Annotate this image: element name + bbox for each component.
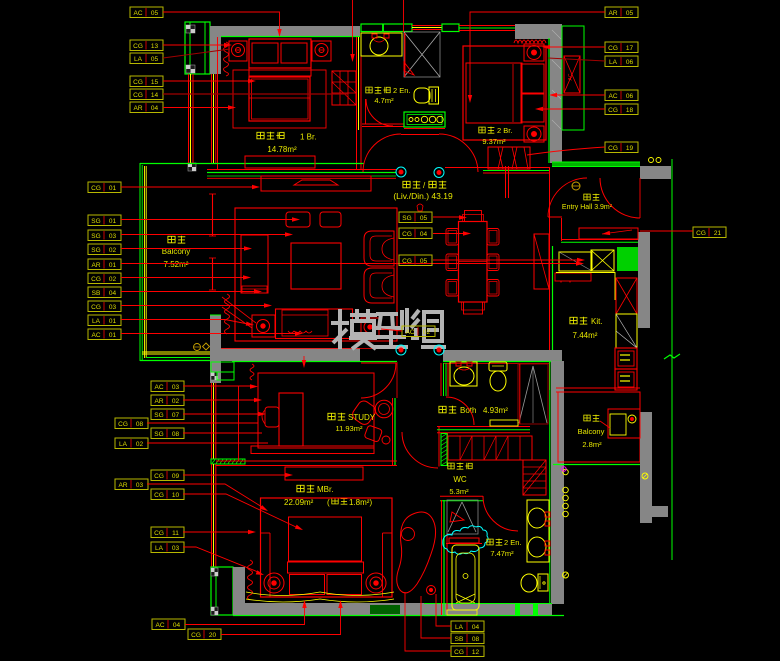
svg-text:CG: CG: [133, 92, 143, 99]
svg-text:SG: SG: [91, 233, 100, 240]
svg-text:SG: SG: [154, 431, 163, 438]
svg-text:CG: CG: [608, 45, 618, 52]
svg-text:5.3m²: 5.3m²: [449, 487, 469, 496]
svg-text:CG: CG: [133, 79, 143, 86]
svg-text:04: 04: [173, 622, 181, 629]
svg-text:08: 08: [136, 421, 144, 428]
svg-text:1.8m²): 1.8m²): [349, 498, 372, 507]
svg-text:7.47m²: 7.47m²: [490, 549, 514, 558]
svg-text:10: 10: [172, 492, 180, 499]
svg-text:04: 04: [420, 231, 428, 238]
svg-text:2 En.: 2 En.: [393, 86, 411, 95]
svg-text:AR: AR: [608, 10, 617, 17]
svg-text:03: 03: [109, 233, 117, 240]
svg-text:SG: SG: [402, 215, 411, 222]
svg-text:CG: CG: [454, 649, 464, 656]
svg-text:MBr.: MBr.: [317, 485, 333, 494]
svg-text:AC: AC: [154, 384, 163, 391]
svg-text:15: 15: [151, 79, 159, 86]
svg-text:SB: SB: [455, 636, 464, 643]
svg-text:AC: AC: [568, 73, 574, 80]
svg-text:CG: CG: [608, 145, 618, 152]
svg-text:Entry Hall 3.9m²: Entry Hall 3.9m²: [562, 204, 613, 211]
svg-text:LA: LA: [119, 441, 128, 448]
svg-text:AR: AR: [118, 482, 127, 489]
svg-text:01: 01: [109, 318, 117, 325]
svg-text:CG: CG: [696, 230, 706, 237]
svg-text:18: 18: [626, 107, 634, 114]
svg-text:CG: CG: [191, 632, 201, 639]
svg-text:11.93m²: 11.93m²: [336, 424, 363, 433]
svg-text:LA: LA: [155, 545, 164, 552]
svg-text:Kit.: Kit.: [591, 317, 603, 326]
svg-text:SG: SG: [91, 247, 100, 254]
svg-text:2 En.: 2 En.: [504, 538, 522, 547]
svg-text:04: 04: [151, 105, 159, 112]
svg-text:05: 05: [420, 215, 428, 222]
svg-text:CG: CG: [91, 185, 101, 192]
svg-text:03: 03: [109, 304, 117, 311]
svg-text:AC: AC: [608, 93, 617, 100]
svg-text:21: 21: [714, 230, 722, 237]
svg-text:03: 03: [136, 482, 144, 489]
svg-text:7.44m²: 7.44m²: [573, 331, 598, 340]
svg-text:CG: CG: [154, 492, 164, 499]
svg-text:LA: LA: [455, 624, 464, 631]
svg-text:01: 01: [109, 332, 117, 339]
svg-text:CG: CG: [133, 43, 143, 50]
svg-text:03: 03: [172, 545, 180, 552]
svg-text:2 Br.: 2 Br.: [497, 126, 512, 135]
svg-text:05: 05: [151, 56, 159, 63]
svg-text:02: 02: [172, 398, 180, 405]
svg-text:AR: AR: [91, 262, 100, 269]
svg-text:CG: CG: [91, 276, 101, 283]
svg-text:AC: AC: [405, 329, 414, 336]
svg-text:SG: SG: [91, 218, 100, 225]
svg-text:08: 08: [172, 431, 180, 438]
svg-text:22.09m²: 22.09m²: [284, 498, 314, 507]
svg-text:CG: CG: [608, 107, 618, 114]
svg-text:13: 13: [151, 43, 159, 50]
svg-text:01: 01: [109, 262, 117, 269]
svg-text:12: 12: [472, 649, 480, 656]
svg-text:SB: SB: [92, 290, 101, 297]
svg-text:CG: CG: [402, 258, 412, 265]
svg-text:04: 04: [472, 624, 480, 631]
svg-text:08: 08: [472, 636, 480, 643]
svg-text:7.52m²: 7.52m²: [164, 260, 189, 269]
svg-text:9.37m²: 9.37m²: [482, 137, 506, 146]
svg-text:AC: AC: [133, 10, 142, 17]
svg-text:07: 07: [172, 412, 180, 419]
svg-text:(: (: [327, 498, 330, 507]
svg-text:STUDY: STUDY: [348, 413, 376, 422]
svg-text:Balcony: Balcony: [578, 427, 605, 436]
svg-text:CG: CG: [118, 421, 128, 428]
svg-text:19: 19: [626, 145, 634, 152]
svg-text:17: 17: [626, 45, 634, 52]
svg-text:11: 11: [172, 530, 179, 537]
svg-text:(Liv./Din.) 43.19: (Liv./Din.) 43.19: [393, 191, 453, 201]
svg-text:01: 01: [109, 185, 117, 192]
svg-text:01: 01: [109, 218, 117, 225]
svg-text:4.93m²: 4.93m²: [483, 406, 508, 415]
svg-text:CG: CG: [91, 304, 101, 311]
svg-text:AC: AC: [155, 622, 164, 629]
svg-text:CG: CG: [402, 231, 412, 238]
svg-text:2.8m²: 2.8m²: [582, 440, 602, 449]
svg-text:LA: LA: [134, 56, 143, 63]
svg-text:02: 02: [136, 441, 144, 448]
svg-text:CG: CG: [154, 473, 164, 480]
svg-text:14.78m²: 14.78m²: [267, 145, 297, 154]
svg-text:14: 14: [151, 92, 159, 99]
svg-text:02: 02: [109, 247, 117, 254]
svg-text:02: 02: [109, 276, 117, 283]
svg-text:02: 02: [423, 329, 431, 336]
svg-text:09: 09: [172, 473, 180, 480]
svg-text:AR: AR: [133, 105, 142, 112]
svg-text:WC: WC: [453, 475, 467, 484]
svg-text:06: 06: [626, 93, 634, 100]
svg-text:CG: CG: [154, 530, 164, 537]
svg-text:LA: LA: [92, 318, 101, 325]
svg-text:03: 03: [172, 384, 180, 391]
svg-text:06: 06: [626, 59, 634, 66]
svg-text:05: 05: [626, 10, 634, 17]
svg-text:1 Br.: 1 Br.: [300, 133, 316, 142]
svg-text:LA: LA: [609, 59, 618, 66]
svg-text:04: 04: [109, 290, 117, 297]
svg-text:05: 05: [420, 258, 428, 265]
svg-text:SG: SG: [154, 412, 163, 419]
svg-text:AC: AC: [91, 332, 100, 339]
svg-text:4.7m²: 4.7m²: [374, 96, 394, 105]
svg-text:20: 20: [209, 632, 217, 639]
svg-text:AR: AR: [154, 398, 163, 405]
svg-text:05: 05: [151, 10, 159, 17]
